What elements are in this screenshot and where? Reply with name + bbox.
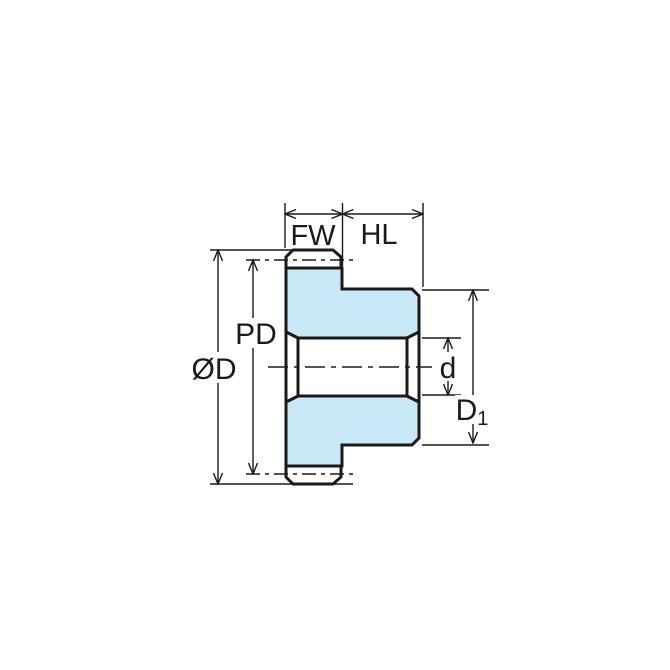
d1-label-main: D bbox=[456, 394, 478, 427]
d-label: d bbox=[440, 352, 457, 385]
d1-label-subscript: 1 bbox=[477, 408, 488, 430]
hl-label: HL bbox=[360, 219, 397, 251]
gear-lower-body bbox=[286, 396, 419, 466]
pd-label: PD bbox=[235, 318, 277, 351]
fw-label: FW bbox=[290, 220, 336, 252]
gear-dimension-diagram: FW HL ØD PD d D1 bbox=[0, 0, 670, 670]
bottom-tooth bbox=[286, 466, 341, 484]
drawing-canvas: FW HL ØD PD d D1 bbox=[0, 0, 670, 670]
od-label: ØD bbox=[192, 353, 237, 386]
gear-upper-body bbox=[286, 268, 419, 338]
top-tooth bbox=[286, 250, 341, 268]
